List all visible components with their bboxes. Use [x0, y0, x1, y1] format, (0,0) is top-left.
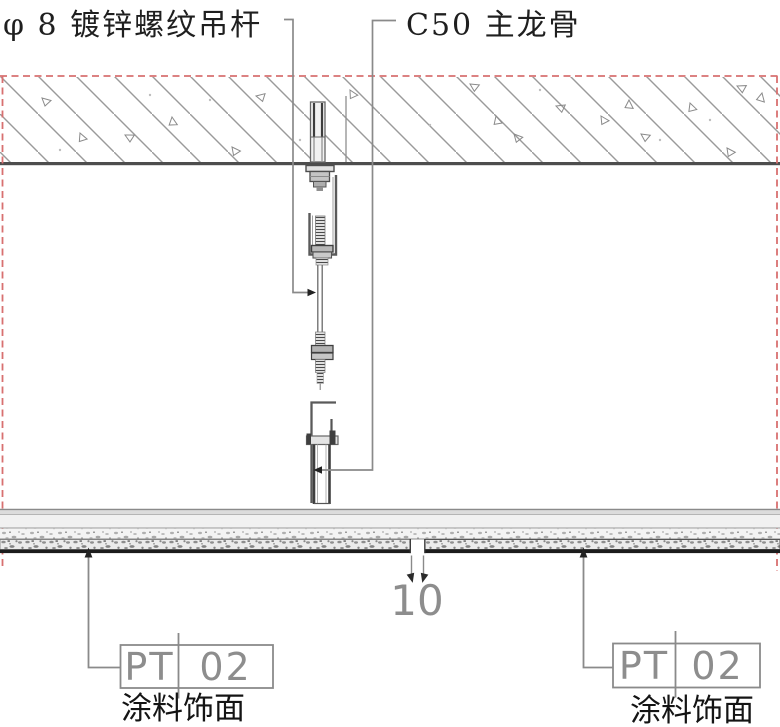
gypsum-board-upper — [0, 529, 780, 539]
concrete-slab — [0, 77, 780, 165]
ceiling-panel — [0, 510, 780, 554]
callout-main-runner: C50 主龙骨 — [406, 0, 581, 44]
gap-dimension-value: 10 — [387, 580, 447, 622]
expansion-anchor — [311, 102, 326, 162]
finish-desc-right: 涂料饰面 — [624, 694, 760, 727]
gypsum-board-lower-left — [0, 540, 410, 554]
finish-tag-right-number: 02 — [676, 645, 759, 687]
finish-desc-left: 涂料饰面 — [118, 692, 248, 726]
ceiling-detail-drawing: φ 8 镀锌螺纹吊杆 C50 主龙骨 10 PT 02 涂料饰面 PT 02 涂… — [0, 0, 780, 727]
panel-gap — [410, 539, 425, 553]
finish-tag-left-code: PT — [121, 646, 178, 688]
finish-tag-left-number: 02 — [179, 646, 272, 688]
slab-soffit-line — [0, 162, 780, 165]
gypsum-board-lower-right — [425, 540, 780, 554]
rod-coupler-nuts — [312, 346, 334, 360]
finish-tag-right-code: PT — [613, 645, 675, 687]
callout-hanger-rod: φ 8 镀锌螺纹吊杆 — [3, 0, 262, 44]
